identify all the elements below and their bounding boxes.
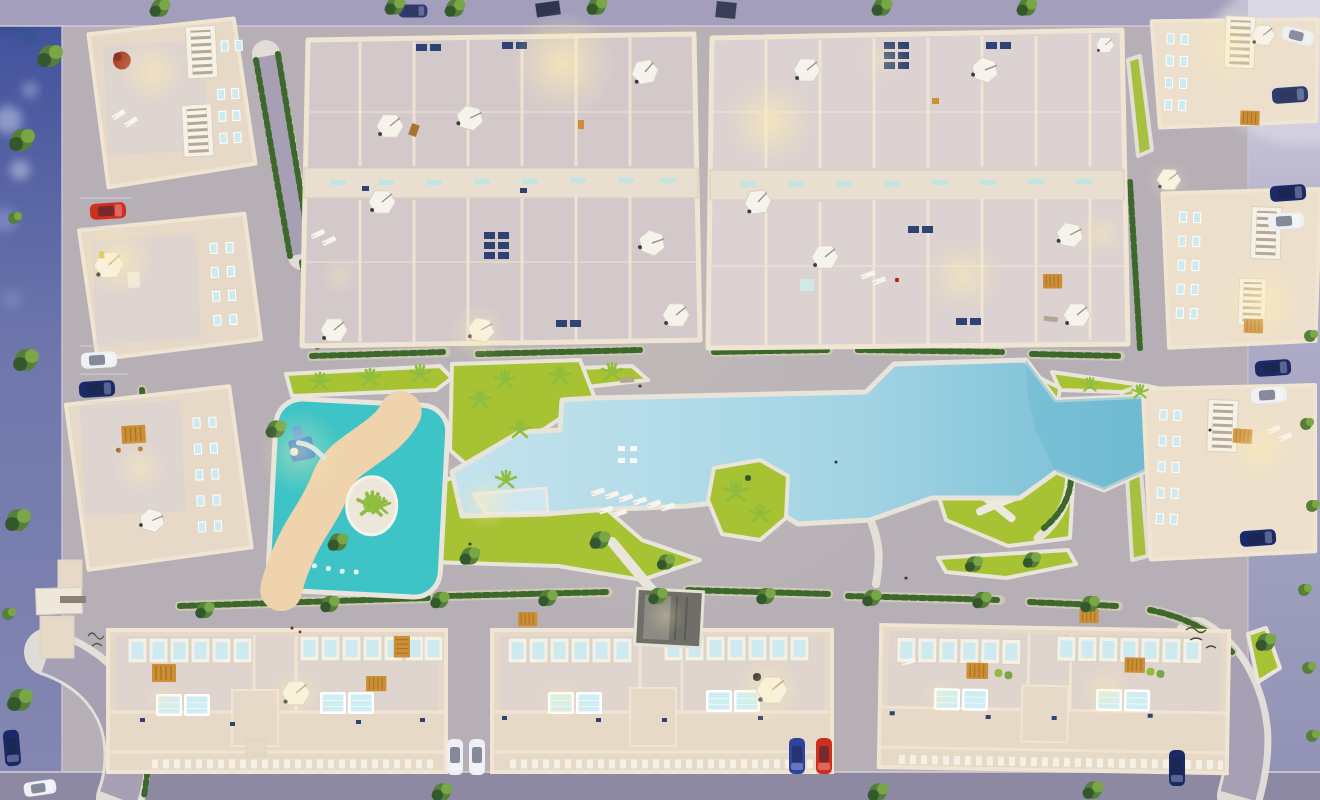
corridor-center	[304, 168, 698, 198]
corridor-east	[710, 170, 1124, 200]
car-white-gap-2	[469, 739, 485, 775]
car-navy-east-top	[1271, 86, 1308, 104]
south-road	[0, 772, 1320, 800]
hedges-north	[312, 350, 1120, 356]
car-navy-east-1	[1269, 184, 1306, 202]
pool-island	[708, 460, 788, 540]
car-navy-west	[79, 380, 116, 398]
car-navy-west-street	[2, 729, 21, 766]
car-white-east-2	[1250, 386, 1287, 404]
car-red-gap	[816, 738, 832, 774]
car-navy-se	[1169, 750, 1185, 786]
car-white-west	[81, 351, 118, 369]
sw-roof-pool-4	[348, 692, 374, 714]
north-kiosk-2	[715, 1, 737, 19]
car-navy-east-3	[1239, 529, 1276, 547]
car-red-west	[90, 202, 127, 220]
car-navy-east-2	[1254, 359, 1291, 377]
car-blue-gap	[789, 738, 805, 774]
sc-roof-pool-3	[706, 690, 732, 712]
aerial-render	[0, 0, 1320, 800]
sc-stair-core	[630, 688, 676, 746]
townhouse-block-north-center	[302, 34, 700, 346]
render-canvas	[0, 0, 1320, 800]
se-roof-pool-2	[962, 688, 988, 710]
sw-roof-pool-2	[184, 694, 210, 716]
pool-bench	[620, 377, 634, 383]
car-white-east-1	[1267, 212, 1304, 230]
se-stair-core	[1021, 686, 1068, 743]
car-white-gap-1	[447, 739, 463, 775]
